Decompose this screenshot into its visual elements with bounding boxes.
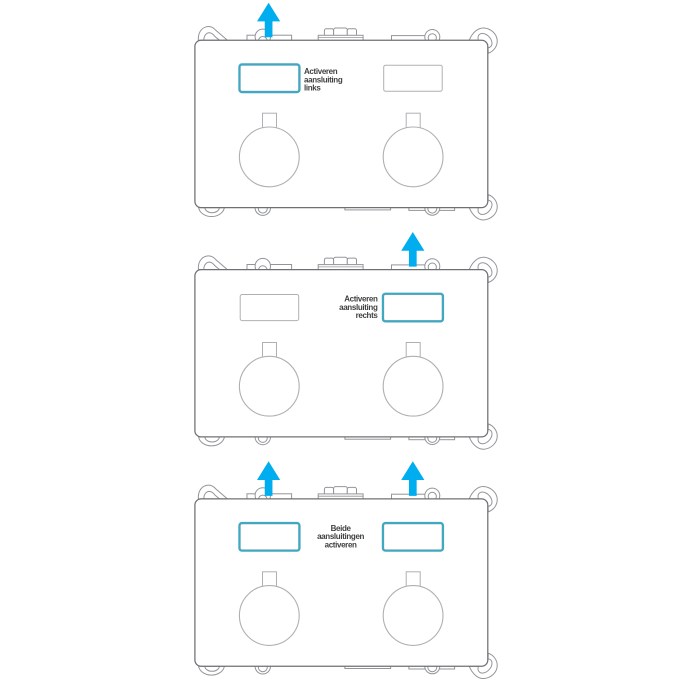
- svg-text:rechts: rechts: [356, 311, 379, 320]
- svg-text:activeren: activeren: [325, 541, 357, 550]
- svg-text:links: links: [304, 84, 321, 93]
